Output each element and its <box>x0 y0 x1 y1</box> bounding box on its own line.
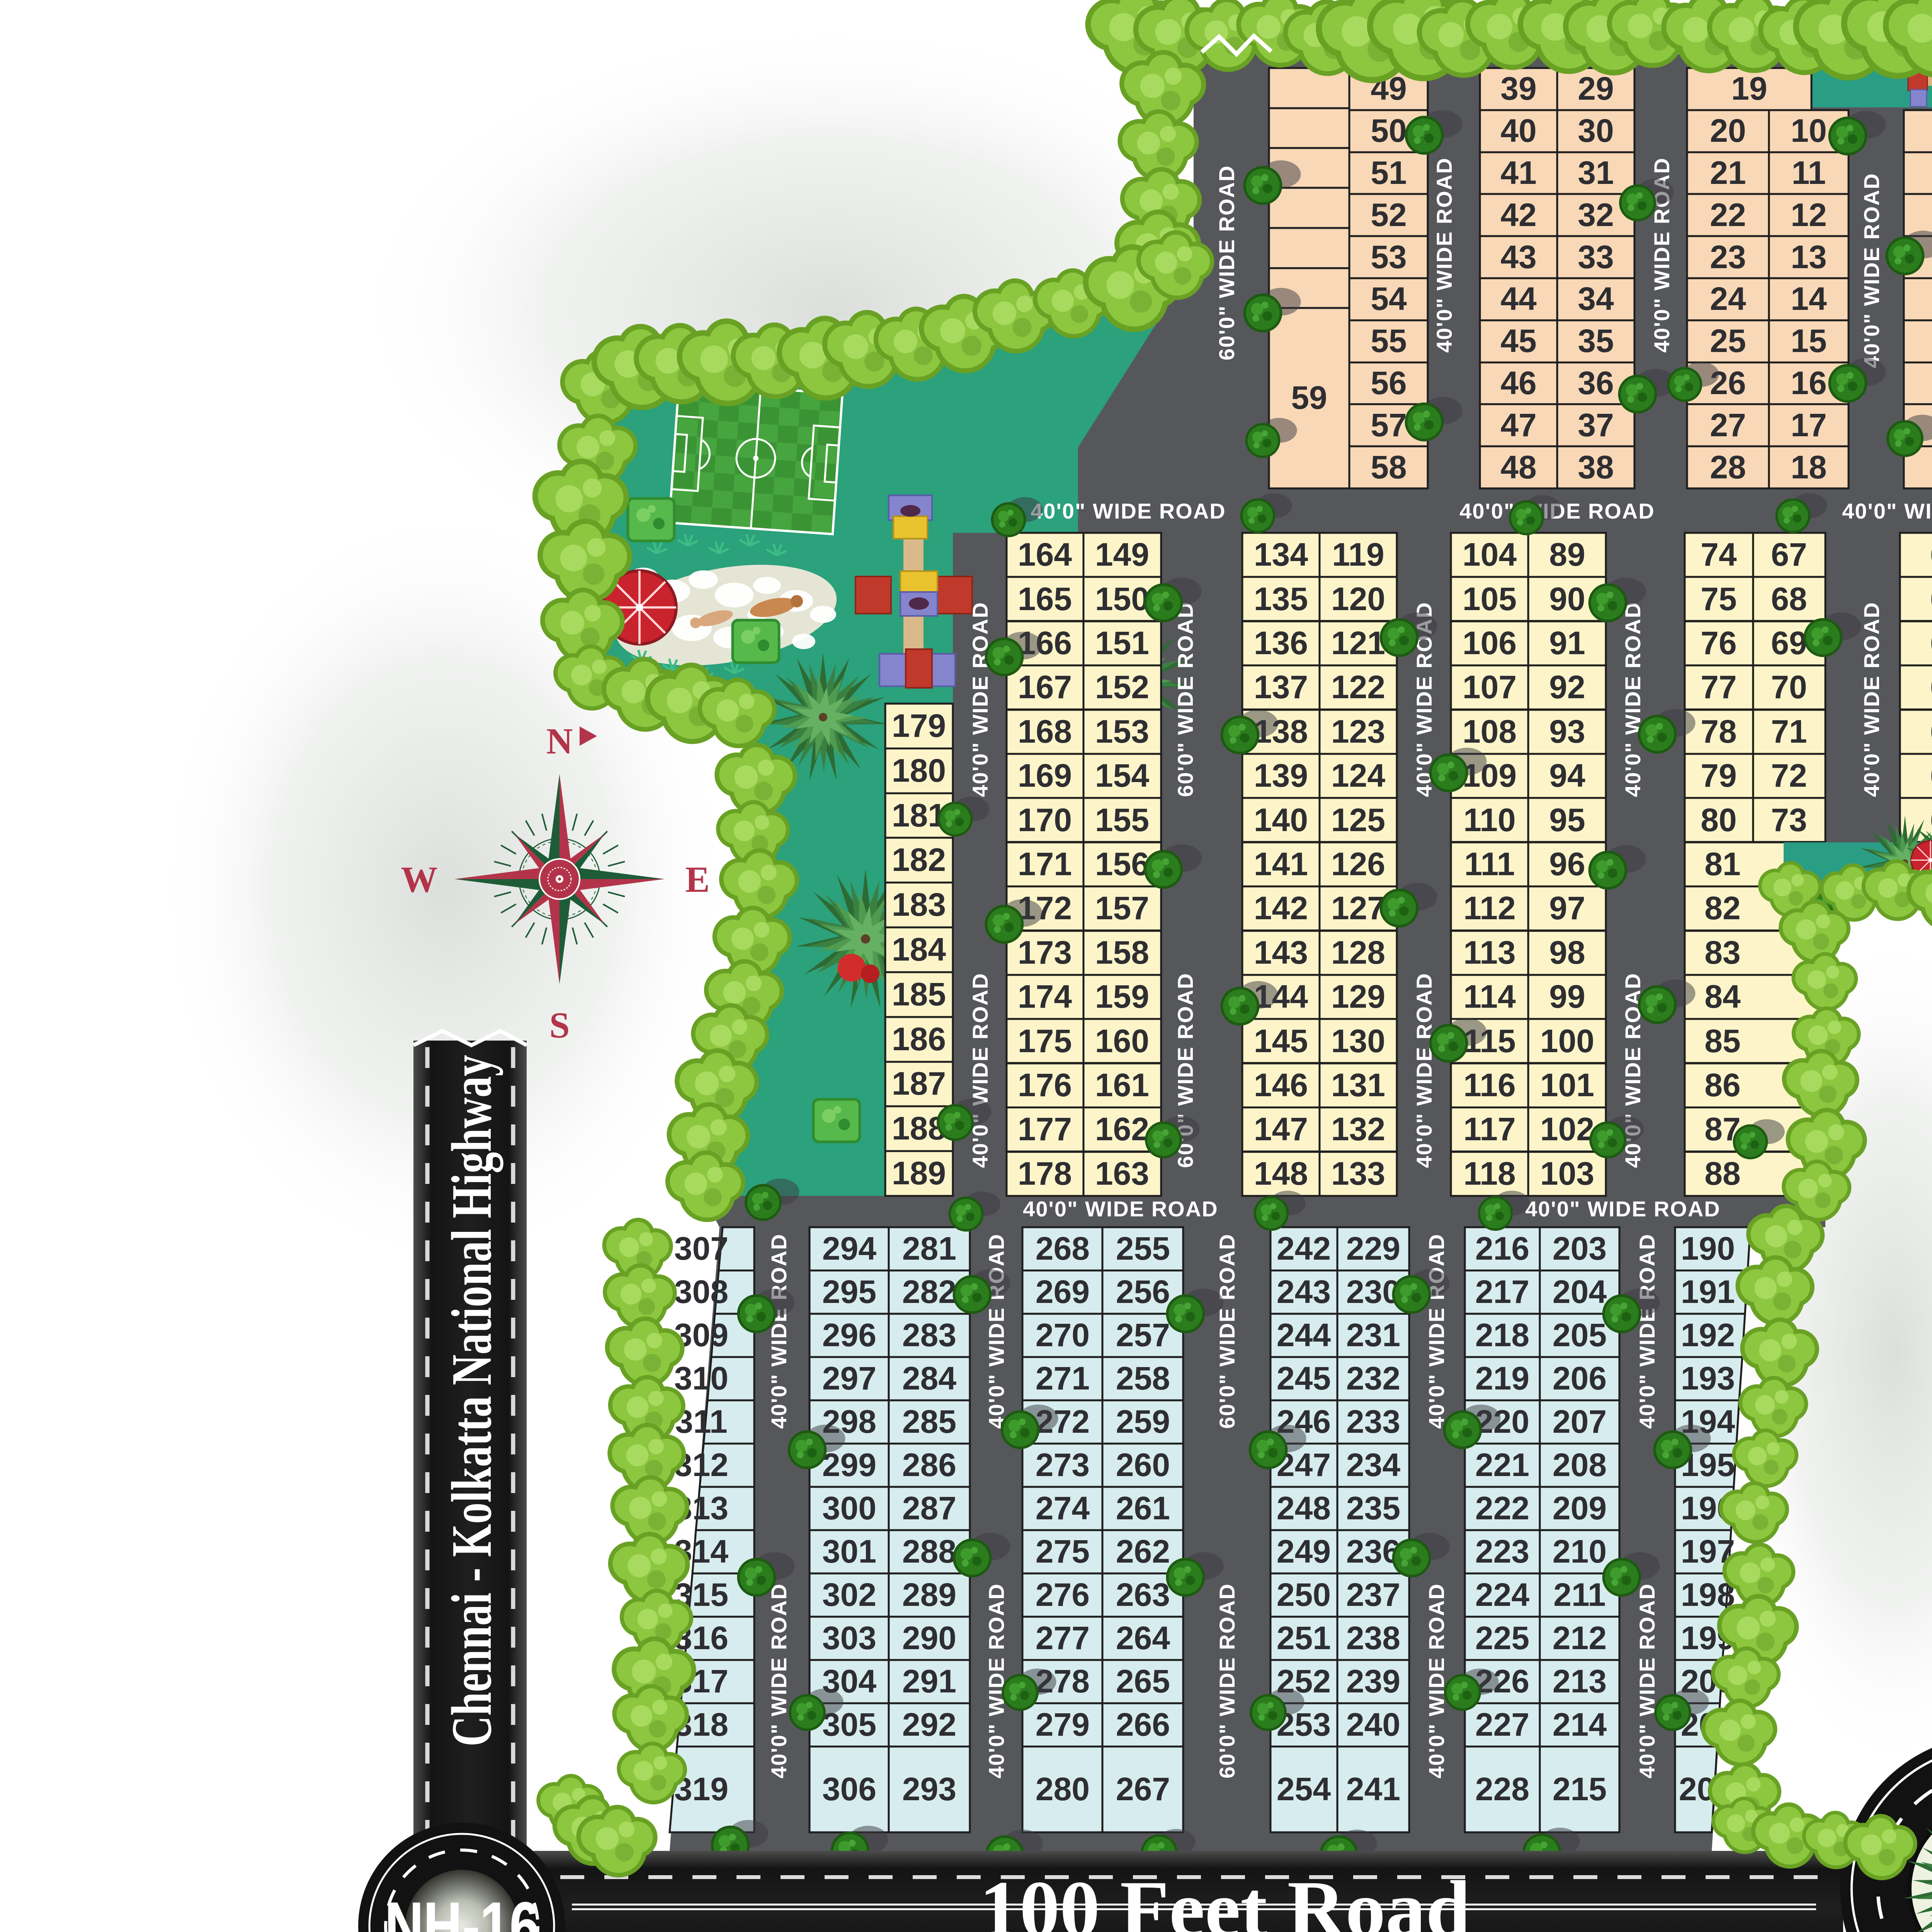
svg-text:127: 127 <box>1331 890 1385 926</box>
svg-text:208: 208 <box>1553 1447 1607 1483</box>
svg-text:85: 85 <box>1704 1023 1740 1059</box>
svg-text:72: 72 <box>1771 757 1807 794</box>
svg-text:151: 151 <box>1095 625 1149 661</box>
svg-text:14: 14 <box>1791 281 1827 317</box>
svg-text:34: 34 <box>1578 281 1614 317</box>
svg-text:218: 218 <box>1475 1317 1529 1353</box>
svg-text:103: 103 <box>1540 1155 1594 1192</box>
svg-text:153: 153 <box>1095 713 1149 750</box>
svg-text:217: 217 <box>1475 1274 1529 1310</box>
svg-text:154: 154 <box>1095 757 1149 794</box>
svg-text:169: 169 <box>1018 757 1072 794</box>
svg-text:100 Feet Road: 100 Feet Road <box>980 1864 1471 1932</box>
svg-text:40'0" WIDE ROAD: 40'0" WIDE ROAD <box>767 1583 791 1779</box>
svg-text:209: 209 <box>1553 1490 1607 1526</box>
svg-text:187: 187 <box>892 1065 946 1102</box>
svg-text:92: 92 <box>1549 669 1585 705</box>
svg-text:141: 141 <box>1254 846 1308 882</box>
svg-text:60'0" WIDE ROAD: 60'0" WIDE ROAD <box>1215 1583 1239 1779</box>
svg-text:40'0" WIDE ROAD: 40'0" WIDE ROAD <box>1635 1233 1659 1429</box>
svg-text:13: 13 <box>1791 239 1827 275</box>
svg-text:289: 289 <box>902 1577 956 1613</box>
svg-text:111: 111 <box>1464 846 1515 882</box>
svg-text:277: 277 <box>1036 1620 1090 1656</box>
svg-text:186: 186 <box>892 1021 946 1057</box>
svg-text:216: 216 <box>1475 1230 1529 1267</box>
svg-text:245: 245 <box>1277 1360 1331 1396</box>
svg-text:158: 158 <box>1095 934 1149 971</box>
svg-text:133: 133 <box>1331 1155 1385 1192</box>
svg-text:294: 294 <box>822 1230 876 1267</box>
svg-text:241: 241 <box>1346 1771 1400 1807</box>
svg-text:73: 73 <box>1771 802 1807 838</box>
svg-text:15: 15 <box>1791 323 1827 359</box>
svg-text:43: 43 <box>1500 239 1536 275</box>
svg-text:22: 22 <box>1710 197 1746 233</box>
svg-text:222: 222 <box>1475 1490 1529 1526</box>
svg-text:234: 234 <box>1346 1447 1400 1483</box>
svg-text:149: 149 <box>1095 536 1149 573</box>
svg-text:225: 225 <box>1475 1620 1529 1656</box>
svg-text:64: 64 <box>1930 713 1932 750</box>
svg-text:122: 122 <box>1331 669 1385 705</box>
svg-text:42: 42 <box>1500 197 1536 233</box>
svg-text:69: 69 <box>1771 625 1807 661</box>
svg-text:40'0" WIDE ROAD: 40'0" WIDE ROAD <box>1424 1583 1449 1779</box>
svg-text:273: 273 <box>1036 1447 1090 1483</box>
svg-text:10: 10 <box>1791 112 1827 149</box>
svg-text:183: 183 <box>892 886 946 923</box>
svg-text:288: 288 <box>902 1533 956 1570</box>
svg-text:232: 232 <box>1346 1360 1400 1396</box>
svg-text:68: 68 <box>1771 581 1807 617</box>
svg-text:233: 233 <box>1346 1403 1400 1440</box>
svg-text:181: 181 <box>892 797 946 833</box>
svg-text:301: 301 <box>822 1533 876 1570</box>
svg-text:40'0" WIDE ROAD: 40'0" WIDE ROAD <box>1621 602 1645 797</box>
svg-text:163: 163 <box>1095 1155 1149 1192</box>
svg-text:283: 283 <box>902 1317 956 1353</box>
svg-text:306: 306 <box>822 1771 876 1807</box>
svg-text:11: 11 <box>1792 155 1826 191</box>
svg-text:132: 132 <box>1331 1111 1385 1147</box>
svg-text:38: 38 <box>1578 449 1614 485</box>
svg-text:170: 170 <box>1018 802 1072 838</box>
svg-text:40: 40 <box>1500 112 1536 149</box>
svg-text:152: 152 <box>1095 669 1149 705</box>
svg-text:300: 300 <box>822 1490 876 1526</box>
svg-text:117: 117 <box>1463 1111 1516 1147</box>
svg-text:105: 105 <box>1463 581 1517 617</box>
svg-text:215: 215 <box>1553 1771 1607 1807</box>
svg-text:119: 119 <box>1332 536 1384 573</box>
svg-text:102: 102 <box>1540 1111 1594 1147</box>
svg-text:S: S <box>549 1005 570 1046</box>
svg-text:61: 61 <box>1930 581 1932 617</box>
svg-text:256: 256 <box>1116 1274 1170 1310</box>
svg-text:142: 142 <box>1254 890 1308 926</box>
svg-text:90: 90 <box>1549 581 1585 617</box>
svg-text:116: 116 <box>1463 1067 1516 1103</box>
svg-text:Chennai - Kolkatta National Hi: Chennai - Kolkatta National Highway <box>440 1055 503 1747</box>
svg-text:96: 96 <box>1549 846 1585 882</box>
svg-text:75: 75 <box>1701 581 1736 617</box>
svg-text:299: 299 <box>822 1447 876 1483</box>
svg-text:139: 139 <box>1254 757 1308 794</box>
svg-text:107: 107 <box>1463 669 1517 705</box>
svg-text:260: 260 <box>1116 1447 1170 1483</box>
svg-text:279: 279 <box>1036 1706 1090 1743</box>
svg-text:228: 228 <box>1475 1771 1529 1807</box>
svg-text:98: 98 <box>1549 934 1585 971</box>
svg-text:93: 93 <box>1549 713 1585 750</box>
svg-text:40'0" WIDE ROAD: 40'0" WIDE ROAD <box>767 1233 791 1429</box>
svg-text:16: 16 <box>1791 365 1827 401</box>
svg-text:48: 48 <box>1500 449 1536 485</box>
svg-text:265: 265 <box>1116 1663 1170 1699</box>
svg-text:70: 70 <box>1771 669 1807 705</box>
svg-text:147: 147 <box>1254 1111 1308 1147</box>
svg-text:262: 262 <box>1116 1533 1170 1570</box>
svg-text:60'0" WIDE ROAD: 60'0" WIDE ROAD <box>1215 1233 1239 1429</box>
svg-text:124: 124 <box>1331 757 1385 794</box>
svg-text:50: 50 <box>1371 112 1406 149</box>
svg-text:40'0" WIDE ROAD: 40'0" WIDE ROAD <box>1424 1233 1449 1429</box>
svg-text:160: 160 <box>1095 1023 1149 1059</box>
svg-text:55: 55 <box>1371 323 1406 359</box>
svg-text:145: 145 <box>1254 1023 1308 1059</box>
svg-text:214: 214 <box>1553 1706 1607 1743</box>
svg-text:290: 290 <box>902 1620 956 1656</box>
svg-text:137: 137 <box>1254 669 1308 705</box>
svg-text:264: 264 <box>1116 1620 1170 1656</box>
svg-text:286: 286 <box>902 1447 956 1483</box>
svg-text:146: 146 <box>1254 1067 1308 1103</box>
svg-text:40'0" WIDE ROAD: 40'0" WIDE ROAD <box>1525 1197 1721 1221</box>
svg-text:168: 168 <box>1018 713 1072 750</box>
svg-text:156: 156 <box>1095 846 1149 882</box>
svg-text:308: 308 <box>674 1274 728 1310</box>
svg-text:81: 81 <box>1704 846 1740 882</box>
svg-text:12: 12 <box>1791 197 1827 233</box>
svg-text:182: 182 <box>892 842 946 878</box>
svg-text:267: 267 <box>1116 1771 1170 1807</box>
svg-text:250: 250 <box>1277 1577 1331 1613</box>
svg-text:56: 56 <box>1371 365 1406 401</box>
svg-text:76: 76 <box>1701 625 1736 661</box>
svg-text:36: 36 <box>1578 365 1614 401</box>
svg-text:292: 292 <box>902 1706 956 1743</box>
svg-text:282: 282 <box>902 1274 956 1310</box>
svg-text:184: 184 <box>892 931 946 968</box>
svg-text:276: 276 <box>1036 1577 1090 1613</box>
svg-text:280: 280 <box>1036 1771 1090 1807</box>
svg-text:40'0" WIDE ROAD: 40'0" WIDE ROAD <box>1031 499 1226 523</box>
svg-text:167: 167 <box>1018 669 1072 705</box>
svg-text:192: 192 <box>1681 1317 1735 1353</box>
svg-text:126: 126 <box>1331 846 1385 882</box>
svg-text:58: 58 <box>1371 449 1406 485</box>
svg-text:295: 295 <box>822 1274 876 1310</box>
svg-text:62: 62 <box>1930 625 1932 661</box>
svg-text:205: 205 <box>1553 1317 1607 1353</box>
svg-text:40'0" WIDE ROAD: 40'0" WIDE ROAD <box>968 973 992 1168</box>
svg-text:148: 148 <box>1254 1155 1308 1192</box>
svg-text:135: 135 <box>1254 581 1308 617</box>
svg-text:59: 59 <box>1291 379 1327 416</box>
svg-text:71: 71 <box>1771 713 1807 750</box>
svg-text:207: 207 <box>1553 1403 1607 1440</box>
svg-text:89: 89 <box>1549 536 1585 573</box>
svg-text:185: 185 <box>892 976 946 1012</box>
svg-text:23: 23 <box>1710 239 1746 275</box>
svg-text:54: 54 <box>1371 281 1407 317</box>
svg-text:40'0" WIDE ROAD: 40'0" WIDE ROAD <box>1412 973 1436 1168</box>
svg-text:310: 310 <box>674 1360 728 1396</box>
svg-text:18: 18 <box>1791 449 1827 485</box>
svg-text:97: 97 <box>1549 890 1585 926</box>
svg-text:270: 270 <box>1036 1317 1090 1353</box>
svg-text:177: 177 <box>1018 1111 1072 1147</box>
svg-text:128: 128 <box>1331 934 1385 971</box>
svg-text:287: 287 <box>902 1490 956 1526</box>
svg-text:39: 39 <box>1500 70 1536 107</box>
svg-text:206: 206 <box>1553 1360 1607 1396</box>
svg-text:106: 106 <box>1463 625 1517 661</box>
svg-text:274: 274 <box>1036 1490 1090 1526</box>
svg-text:240: 240 <box>1346 1706 1400 1743</box>
svg-text:40'0" WIDE ROAD: 40'0" WIDE ROAD <box>1023 1197 1218 1221</box>
svg-text:231: 231 <box>1346 1317 1400 1353</box>
svg-text:79: 79 <box>1701 757 1736 794</box>
svg-text:99: 99 <box>1549 978 1585 1015</box>
svg-text:303: 303 <box>822 1620 876 1656</box>
svg-text:40'0" WIDE ROAD: 40'0" WIDE ROAD <box>1432 157 1456 353</box>
svg-text:67: 67 <box>1771 536 1807 573</box>
svg-text:131: 131 <box>1331 1067 1385 1103</box>
svg-text:284: 284 <box>902 1360 956 1396</box>
svg-text:257: 257 <box>1116 1317 1170 1353</box>
svg-text:27: 27 <box>1710 407 1746 443</box>
svg-text:E: E <box>685 859 709 900</box>
svg-text:40'0" WIDE ROAD: 40'0" WIDE ROAD <box>984 1233 1009 1429</box>
svg-text:60'0" WIDE ROAD: 60'0" WIDE ROAD <box>1173 602 1197 797</box>
svg-text:20: 20 <box>1710 112 1746 149</box>
svg-text:134: 134 <box>1254 536 1308 573</box>
svg-text:33: 33 <box>1578 239 1614 275</box>
svg-text:91: 91 <box>1549 625 1585 661</box>
svg-text:189: 189 <box>892 1155 946 1191</box>
svg-text:266: 266 <box>1116 1706 1170 1743</box>
svg-text:40'0" WIDE ROAD: 40'0" WIDE ROAD <box>968 602 992 797</box>
svg-text:293: 293 <box>902 1771 956 1807</box>
svg-text:221: 221 <box>1475 1447 1529 1483</box>
svg-text:176: 176 <box>1018 1067 1072 1103</box>
svg-text:63: 63 <box>1930 669 1932 705</box>
svg-text:143: 143 <box>1254 934 1308 971</box>
svg-text:281: 281 <box>902 1230 956 1267</box>
svg-text:180: 180 <box>892 752 946 789</box>
svg-text:213: 213 <box>1553 1663 1607 1699</box>
svg-text:235: 235 <box>1346 1490 1400 1526</box>
svg-text:17: 17 <box>1791 407 1827 443</box>
svg-text:254: 254 <box>1277 1771 1331 1807</box>
svg-text:230: 230 <box>1346 1274 1400 1310</box>
svg-text:159: 159 <box>1095 978 1149 1015</box>
svg-text:W: W <box>401 859 438 900</box>
svg-text:285: 285 <box>902 1403 956 1440</box>
svg-text:40'0" WIDE ROAD: 40'0" WIDE ROAD <box>1842 499 1932 523</box>
svg-text:161: 161 <box>1095 1067 1149 1103</box>
svg-text:224: 224 <box>1475 1577 1529 1613</box>
svg-text:65: 65 <box>1930 757 1932 794</box>
svg-text:259: 259 <box>1116 1403 1170 1440</box>
svg-text:212: 212 <box>1553 1620 1607 1656</box>
svg-text:51: 51 <box>1371 155 1406 191</box>
svg-text:100: 100 <box>1540 1023 1594 1059</box>
svg-text:40'0" WIDE ROAD: 40'0" WIDE ROAD <box>1859 173 1884 368</box>
svg-text:229: 229 <box>1346 1230 1400 1267</box>
svg-text:165: 165 <box>1018 581 1072 617</box>
svg-text:120: 120 <box>1331 581 1385 617</box>
svg-text:45: 45 <box>1500 323 1536 359</box>
svg-text:24: 24 <box>1710 281 1746 317</box>
svg-text:95: 95 <box>1549 802 1585 838</box>
svg-text:29: 29 <box>1578 70 1614 107</box>
svg-text:242: 242 <box>1277 1230 1331 1267</box>
svg-text:47: 47 <box>1500 407 1536 443</box>
svg-text:118: 118 <box>1463 1155 1516 1192</box>
svg-text:74: 74 <box>1701 536 1737 573</box>
svg-text:130: 130 <box>1331 1023 1385 1059</box>
svg-text:NH-16: NH-16 <box>385 1889 539 1932</box>
svg-text:302: 302 <box>822 1577 876 1613</box>
svg-text:77: 77 <box>1701 669 1736 705</box>
svg-text:297: 297 <box>822 1360 876 1396</box>
svg-text:21: 21 <box>1710 155 1746 191</box>
svg-text:25: 25 <box>1710 323 1746 359</box>
svg-text:237: 237 <box>1346 1577 1400 1613</box>
svg-text:162: 162 <box>1095 1111 1149 1147</box>
svg-text:112: 112 <box>1463 890 1516 926</box>
svg-text:227: 227 <box>1475 1706 1529 1743</box>
svg-text:203: 203 <box>1553 1230 1607 1267</box>
svg-text:60'0" WIDE ROAD: 60'0" WIDE ROAD <box>1214 165 1239 361</box>
svg-text:N: N <box>546 721 573 762</box>
svg-text:108: 108 <box>1463 713 1517 750</box>
svg-text:104: 104 <box>1463 536 1517 573</box>
svg-text:121: 121 <box>1331 625 1385 661</box>
svg-text:53: 53 <box>1371 239 1406 275</box>
svg-text:263: 263 <box>1116 1577 1170 1613</box>
svg-text:255: 255 <box>1116 1230 1170 1267</box>
svg-text:173: 173 <box>1018 934 1072 971</box>
svg-text:40'0" WIDE ROAD: 40'0" WIDE ROAD <box>1635 1583 1659 1779</box>
svg-text:41: 41 <box>1500 155 1536 191</box>
svg-text:179: 179 <box>892 707 946 744</box>
svg-text:155: 155 <box>1095 802 1149 838</box>
svg-text:175: 175 <box>1018 1023 1072 1059</box>
svg-text:84: 84 <box>1704 978 1741 1015</box>
svg-text:88: 88 <box>1704 1155 1740 1192</box>
svg-text:307: 307 <box>674 1230 728 1267</box>
svg-text:191: 191 <box>1681 1274 1735 1310</box>
svg-text:30: 30 <box>1578 112 1614 149</box>
svg-text:125: 125 <box>1331 802 1385 838</box>
svg-text:129: 129 <box>1331 978 1385 1015</box>
svg-text:78: 78 <box>1701 713 1736 750</box>
svg-text:157: 157 <box>1095 890 1149 926</box>
svg-text:210: 210 <box>1553 1533 1607 1570</box>
svg-text:204: 204 <box>1553 1274 1607 1310</box>
svg-text:60: 60 <box>1930 536 1932 573</box>
svg-text:37: 37 <box>1578 407 1614 443</box>
svg-text:123: 123 <box>1331 713 1385 750</box>
svg-text:171: 171 <box>1018 846 1072 882</box>
svg-text:101: 101 <box>1540 1067 1594 1103</box>
svg-text:211: 211 <box>1553 1577 1606 1613</box>
svg-text:150: 150 <box>1095 581 1149 617</box>
svg-text:32: 32 <box>1578 197 1614 233</box>
svg-text:291: 291 <box>902 1663 956 1699</box>
svg-text:178: 178 <box>1018 1155 1072 1192</box>
svg-text:40'0" WIDE ROAD: 40'0" WIDE ROAD <box>1859 602 1884 797</box>
svg-text:223: 223 <box>1475 1533 1529 1570</box>
svg-text:243: 243 <box>1277 1274 1331 1310</box>
svg-text:57: 57 <box>1371 407 1406 443</box>
svg-text:174: 174 <box>1018 978 1072 1015</box>
svg-text:19: 19 <box>1731 70 1767 107</box>
svg-text:248: 248 <box>1277 1490 1331 1526</box>
svg-text:271: 271 <box>1036 1360 1090 1396</box>
svg-text:46: 46 <box>1500 365 1536 401</box>
svg-text:219: 219 <box>1475 1360 1529 1396</box>
svg-text:140: 140 <box>1254 802 1308 838</box>
svg-text:258: 258 <box>1116 1360 1170 1396</box>
svg-text:40'0" WIDE ROAD: 40'0" WIDE ROAD <box>984 1583 1009 1779</box>
svg-text:35: 35 <box>1578 323 1614 359</box>
svg-text:110: 110 <box>1463 802 1516 838</box>
svg-text:239: 239 <box>1346 1663 1400 1699</box>
svg-text:164: 164 <box>1018 536 1072 573</box>
svg-text:80: 80 <box>1701 802 1736 838</box>
svg-text:66: 66 <box>1930 802 1932 838</box>
svg-text:238: 238 <box>1346 1620 1400 1656</box>
svg-text:83: 83 <box>1704 934 1740 971</box>
svg-text:82: 82 <box>1704 890 1740 926</box>
svg-text:296: 296 <box>822 1317 876 1353</box>
svg-text:114: 114 <box>1463 978 1516 1015</box>
svg-text:261: 261 <box>1116 1490 1170 1526</box>
svg-text:251: 251 <box>1277 1620 1331 1656</box>
svg-text:190: 190 <box>1681 1230 1735 1267</box>
svg-text:244: 244 <box>1277 1317 1331 1353</box>
svg-text:52: 52 <box>1371 197 1406 233</box>
svg-text:269: 269 <box>1036 1274 1090 1310</box>
svg-text:268: 268 <box>1036 1230 1090 1267</box>
svg-text:193: 193 <box>1681 1360 1735 1396</box>
svg-text:44: 44 <box>1500 281 1537 317</box>
svg-text:236: 236 <box>1346 1533 1400 1570</box>
svg-text:275: 275 <box>1036 1533 1090 1570</box>
svg-text:113: 113 <box>1463 934 1516 971</box>
svg-text:249: 249 <box>1277 1533 1331 1570</box>
svg-text:136: 136 <box>1254 625 1308 661</box>
svg-text:28: 28 <box>1710 449 1746 485</box>
svg-text:31: 31 <box>1578 155 1614 191</box>
svg-text:86: 86 <box>1704 1067 1740 1103</box>
svg-text:94: 94 <box>1549 757 1585 794</box>
